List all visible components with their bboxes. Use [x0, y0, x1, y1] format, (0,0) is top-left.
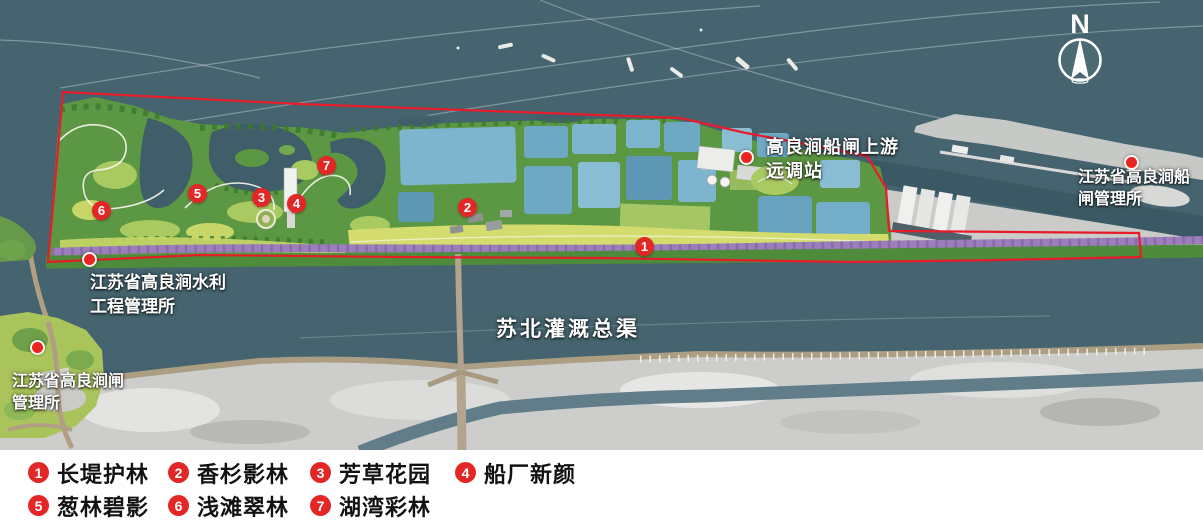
map-legend: 1 长堤护林 2 香杉影林 3 芳草花园 4 船厂新颜 5 葱林碧影 6 — [0, 450, 1203, 528]
upstream-station-marker — [739, 150, 754, 165]
site-plan-map: N 苏北灌溉总渠 高良涧船闸上游 远调站 江苏省高良涧船 闸管理所 江苏省高良涧… — [0, 0, 1203, 450]
ship-lock-office-label: 江苏省高良涧船 闸管理所 — [1078, 167, 1190, 211]
water-works-office-label: 江苏省高良涧水利 工程管理所 — [90, 271, 226, 319]
area-marker-1-number: 1 — [641, 239, 648, 254]
legend-item: 1 长堤护林 — [28, 457, 168, 489]
legend-label-2: 香杉影林 — [197, 457, 289, 489]
legend-badge-2: 2 — [168, 462, 189, 483]
water-works-office-label-line2: 工程管理所 — [90, 295, 226, 319]
legend-badge-6: 6 — [168, 495, 189, 516]
area-marker-4-number: 4 — [293, 196, 300, 211]
legend-item: 2 香杉影林 — [168, 457, 310, 489]
ship-lock-office-marker — [1124, 155, 1139, 170]
legend-item: 4 船厂新颜 — [455, 457, 576, 489]
sluice-office-label-line2: 管理所 — [12, 393, 124, 415]
area-marker-4: 4 — [287, 194, 306, 213]
legend-item: 3 芳草花园 — [310, 457, 455, 489]
legend-label-5: 葱林碧影 — [57, 490, 149, 522]
area-marker-5-number: 5 — [194, 186, 201, 201]
ship-lock-office-label-line1: 江苏省高良涧船 — [1078, 167, 1190, 189]
canal-name-label: 苏北灌溉总渠 — [496, 316, 640, 343]
water-works-office-label-line1: 江苏省高良涧水利 — [90, 271, 226, 295]
legend-badge-3: 3 — [310, 462, 331, 483]
legend-label-3: 芳草花园 — [339, 457, 431, 489]
legend-item: 6 浅滩翠林 — [168, 490, 310, 522]
area-marker-7-number: 7 — [323, 158, 330, 173]
area-marker-1: 1 — [635, 237, 654, 256]
sluice-office-label-line1: 江苏省高良涧闸 — [12, 371, 124, 393]
ship-lock-office-label-line2: 闸管理所 — [1078, 189, 1190, 211]
area-marker-6: 6 — [92, 201, 111, 220]
legend-item: 7 湖湾彩林 — [310, 490, 431, 522]
area-marker-6-number: 6 — [98, 203, 105, 218]
legend-item: 5 葱林碧影 — [28, 490, 168, 522]
legend-label-4: 船厂新颜 — [484, 457, 576, 489]
site-plan-screenshot: N 苏北灌溉总渠 高良涧船闸上游 远调站 江苏省高良涧船 闸管理所 江苏省高良涧… — [0, 0, 1203, 528]
area-marker-2-number: 2 — [464, 200, 471, 215]
legend-badge-7: 7 — [310, 495, 331, 516]
map-artwork: N — [0, 0, 1203, 450]
legend-label-6: 浅滩翠林 — [197, 490, 289, 522]
compass-n-label: N — [1070, 9, 1090, 39]
legend-badge-1: 1 — [28, 462, 49, 483]
sluice-office-marker — [30, 340, 45, 355]
area-marker-2: 2 — [458, 198, 477, 217]
legend-badge-5: 5 — [28, 495, 49, 516]
area-marker-3: 3 — [252, 188, 271, 207]
sluice-office-label: 江苏省高良涧闸 管理所 — [12, 371, 124, 415]
legend-row-1: 1 长堤护林 2 香杉影林 3 芳草花园 4 船厂新颜 — [28, 456, 1203, 489]
legend-badge-4: 4 — [455, 462, 476, 483]
upstream-station-label-line1: 高良涧船闸上游 — [766, 135, 899, 159]
area-marker-3-number: 3 — [258, 190, 265, 205]
legend-row-2: 5 葱林碧影 6 浅滩翠林 7 湖湾彩林 — [28, 489, 1203, 522]
area-marker-5: 5 — [188, 184, 207, 203]
legend-label-7: 湖湾彩林 — [339, 490, 431, 522]
area-marker-7: 7 — [317, 156, 336, 175]
legend-label-1: 长堤护林 — [57, 457, 149, 489]
water-works-office-marker — [82, 252, 97, 267]
upstream-station-label-line2: 远调站 — [766, 159, 899, 183]
upstream-station-label: 高良涧船闸上游 远调站 — [766, 135, 899, 183]
